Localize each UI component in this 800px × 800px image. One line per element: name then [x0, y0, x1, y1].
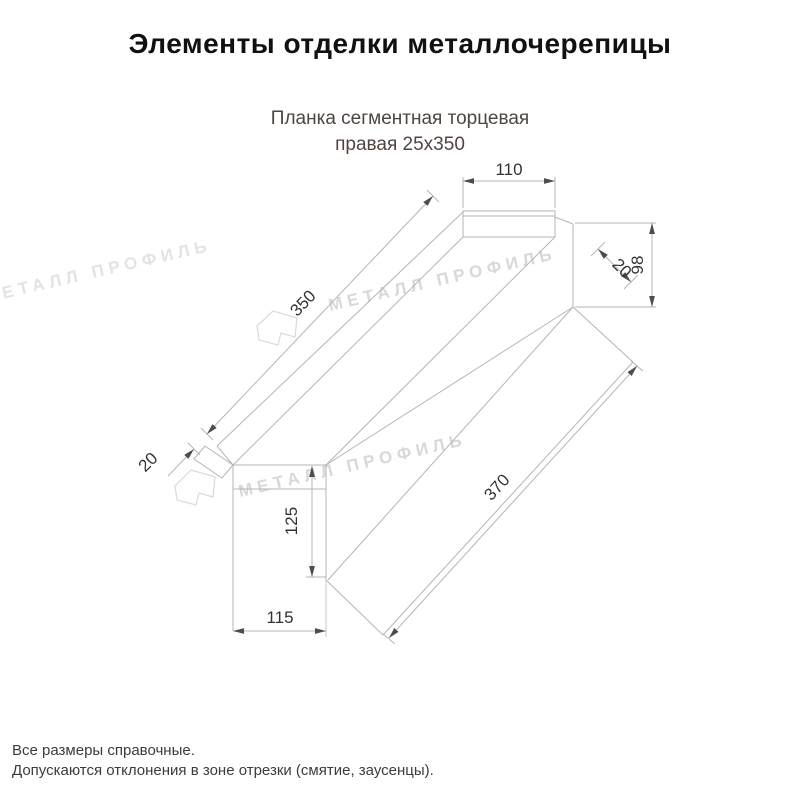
dimension-line — [168, 449, 194, 476]
dim-upper-length-label: 350 — [286, 286, 319, 320]
bottom-end-edge — [326, 580, 383, 635]
watermark-text: МЕТАЛЛ ПРОФИЛЬ — [0, 236, 213, 307]
dim-left-rect-width: 115 — [233, 608, 326, 631]
part-outline — [194, 211, 633, 637]
dim-lower-length-label: 370 — [480, 470, 513, 504]
footer-notes: Все размеры справочные. Допускаются откл… — [12, 741, 772, 781]
footer-note-2: Допускаются отклонения в зоне отрезки (с… — [12, 761, 772, 781]
top-end-face — [463, 211, 555, 237]
dim-left-rect-width-label: 115 — [266, 608, 293, 627]
page: Элементы отделки металлочерепицы Планка … — [0, 0, 800, 800]
metall-profil-logo-icon — [175, 470, 215, 505]
dim-top-width: 110 — [463, 160, 555, 208]
dimension-line — [389, 366, 637, 638]
dim-left-hem-label: 20 — [135, 449, 162, 476]
dimension-line — [207, 196, 433, 434]
strip-edge-2 — [233, 237, 463, 465]
strip-edge-1 — [217, 212, 463, 446]
extension-tick — [383, 634, 395, 644]
watermark-row-2: МЕТАЛЛ ПРОФИЛЬ — [175, 430, 468, 505]
watermark-text: МЕТАЛЛ ПРОФИЛЬ — [327, 244, 559, 315]
dim-left-rect-height-label: 125 — [282, 507, 301, 535]
strip-edge-5 — [328, 307, 573, 580]
technical-drawing: МЕТАЛЛ ПРОФИЛЬ МЕТАЛЛ ПРОФИЛЬ МЕТАЛЛ ПРО… — [0, 0, 800, 800]
strip-edge-6 — [383, 362, 633, 635]
watermark-fragment-left: МЕТАЛЛ ПРОФИЛЬ — [0, 236, 213, 307]
footer-note-1: Все размеры справочные. — [12, 741, 772, 761]
right-end-bottom-edge — [573, 307, 633, 362]
dim-right-hem: 20 — [591, 242, 638, 289]
dim-top-width-label: 110 — [495, 160, 522, 179]
dim-upper-length: 350 — [201, 190, 439, 440]
metall-profil-logo-icon — [257, 311, 297, 345]
right-face-top-edge — [555, 217, 573, 224]
